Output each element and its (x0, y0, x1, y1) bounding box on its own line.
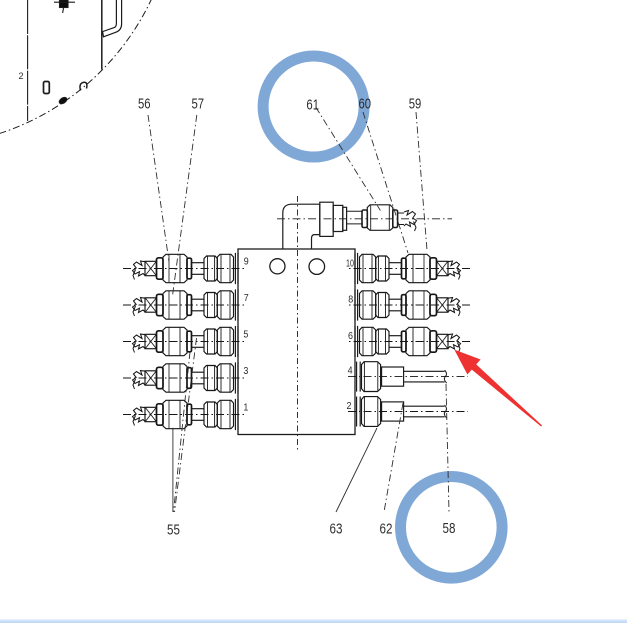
svg-text:8: 8 (348, 294, 353, 306)
svg-text:59: 59 (409, 95, 422, 112)
svg-text:7: 7 (244, 292, 249, 304)
svg-text:3: 3 (243, 365, 248, 377)
svg-text:9: 9 (244, 256, 249, 268)
svg-text:61: 61 (306, 96, 319, 113)
svg-text:2: 2 (19, 71, 24, 81)
svg-text:2: 2 (347, 400, 352, 412)
svg-text:55: 55 (167, 521, 180, 538)
svg-text:62: 62 (380, 520, 393, 537)
svg-text:58: 58 (443, 520, 456, 537)
svg-text:60: 60 (359, 95, 372, 112)
svg-text:56: 56 (138, 95, 151, 112)
svg-text:57: 57 (192, 95, 205, 112)
svg-text:5: 5 (243, 329, 248, 341)
svg-text:6: 6 (348, 330, 353, 342)
svg-text:4: 4 (348, 365, 353, 377)
svg-text:1: 1 (243, 402, 248, 414)
svg-text:63: 63 (330, 520, 343, 537)
svg-text:10: 10 (346, 257, 354, 269)
